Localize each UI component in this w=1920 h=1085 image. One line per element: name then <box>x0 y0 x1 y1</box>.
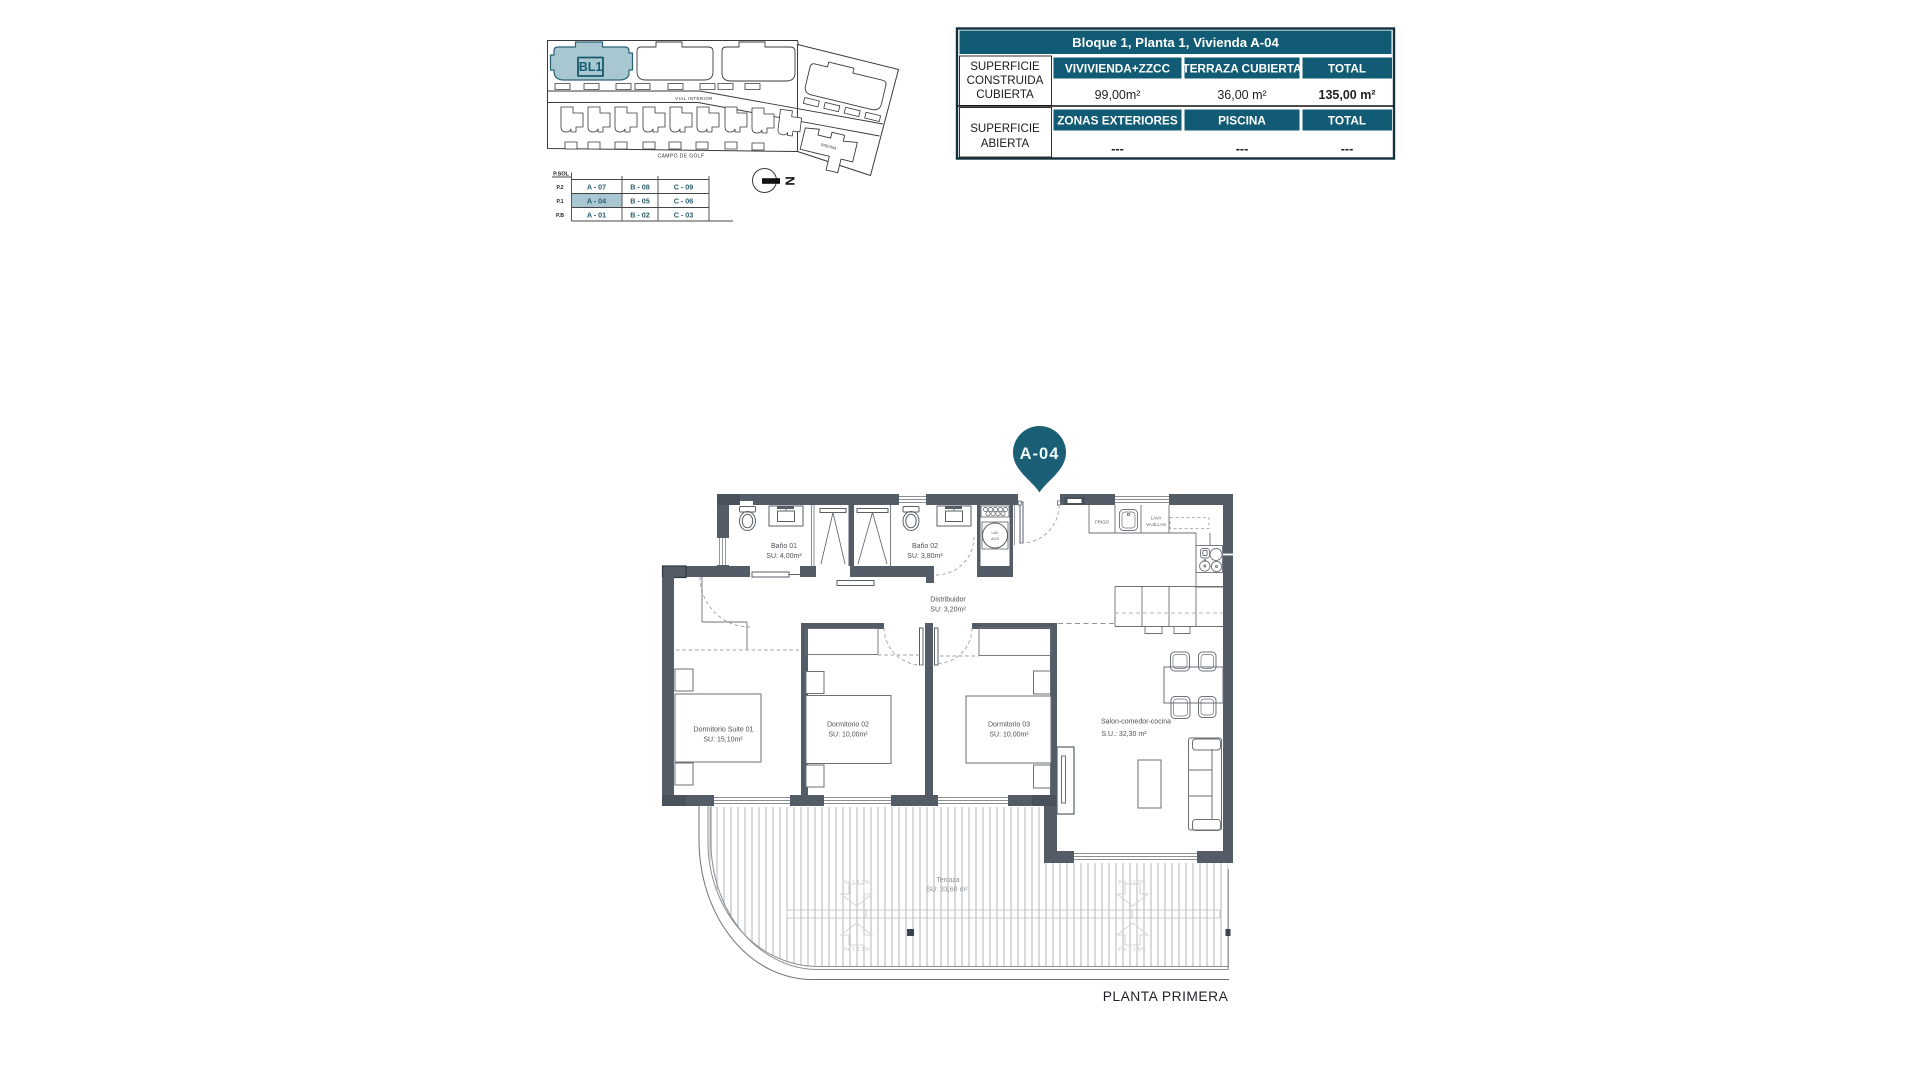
svg-text:TOTAL: TOTAL <box>1328 62 1366 76</box>
svg-text:A-04: A-04 <box>1020 445 1060 463</box>
svg-text:N: N <box>783 176 798 185</box>
svg-text:SU: 15,10m²: SU: 15,10m² <box>703 737 743 744</box>
svg-text:SU: 3,20m²: SU: 3,20m² <box>930 607 966 614</box>
svg-text:CONSTRUIDA: CONSTRUIDA <box>967 74 1044 87</box>
svg-text:TOTAL: TOTAL <box>1328 114 1366 128</box>
svg-text:P.B: P.B <box>556 213 564 219</box>
svg-text:Distribuidor: Distribuidor <box>930 597 966 604</box>
svg-text:Baño 02: Baño 02 <box>912 543 938 550</box>
svg-text:Dormitorio 02: Dormitorio 02 <box>827 722 869 729</box>
svg-text:99,00m²: 99,00m² <box>1095 88 1141 102</box>
svg-text:P.1: P.1 <box>556 199 563 205</box>
svg-text:B - 08: B - 08 <box>630 183 650 192</box>
svg-text:BL1: BL1 <box>579 60 603 74</box>
svg-text:SU: 3,80m²: SU: 3,80m² <box>907 553 943 560</box>
svg-text:ZONAS EXTERIORES: ZONAS EXTERIORES <box>1057 114 1178 128</box>
svg-text:Pte 1-1.3%: Pte 1-1.3% <box>1118 880 1145 886</box>
svg-text:A - 07: A - 07 <box>587 183 606 192</box>
svg-text:SU: 10,00m²: SU: 10,00m² <box>828 732 868 739</box>
svg-text:C - 03: C - 03 <box>674 211 694 220</box>
svg-text:SUPERFICIE: SUPERFICIE <box>970 122 1040 135</box>
svg-text:B - 05: B - 05 <box>630 197 650 206</box>
svg-text:Dormitorio 03: Dormitorio 03 <box>988 722 1030 729</box>
svg-text:LAV: LAV <box>992 531 999 535</box>
svg-text:---: --- <box>1236 142 1249 156</box>
svg-text:PISCINA: PISCINA <box>1218 114 1266 128</box>
svg-text:B - 02: B - 02 <box>630 211 650 220</box>
svg-text:36,00 m²: 36,00 m² <box>1217 88 1266 102</box>
svg-text:SU: 4,00m²: SU: 4,00m² <box>766 553 802 560</box>
svg-text:P.SOL: P.SOL <box>553 172 569 178</box>
svg-text:SUPERFICIE: SUPERFICIE <box>970 60 1040 73</box>
svg-text:C - 06: C - 06 <box>674 197 694 206</box>
svg-text:Baño 01: Baño 01 <box>771 543 797 550</box>
svg-text:ABIERTA: ABIERTA <box>981 137 1030 150</box>
svg-text:FRIGO: FRIGO <box>1095 520 1109 525</box>
svg-text:VIAL INTERIOR: VIAL INTERIOR <box>675 96 713 101</box>
svg-text:ACS: ACS <box>991 537 999 541</box>
svg-text:Dormitorio Suite 01: Dormitorio Suite 01 <box>694 727 754 734</box>
svg-text:P.2: P.2 <box>556 185 563 191</box>
svg-text:Pte 1-1.5%: Pte 1-1.5% <box>1118 947 1145 953</box>
svg-text:Pte 1-1.3%: Pte 1-1.3% <box>842 880 869 886</box>
svg-text:PLANTA PRIMERA: PLANTA PRIMERA <box>1103 989 1229 1004</box>
svg-text:---: --- <box>1111 142 1124 156</box>
svg-text:SU: 33,60 m²: SU: 33,60 m² <box>926 887 968 894</box>
svg-text:Pte 1-1.5%: Pte 1-1.5% <box>842 947 869 953</box>
svg-text:TERRAZA CUBIERTA: TERRAZA CUBIERTA <box>1182 62 1302 76</box>
svg-text:S.U.: 32,30 m²: S.U.: 32,30 m² <box>1101 731 1147 738</box>
svg-text:Terraza: Terraza <box>936 877 959 884</box>
svg-text:---: --- <box>1341 142 1354 156</box>
svg-text:C - 09: C - 09 <box>674 183 694 192</box>
svg-text:LAVA: LAVA <box>1151 516 1162 521</box>
svg-text:Bloque 1, Planta 1, Vivienda A: Bloque 1, Planta 1, Vivienda A-04 <box>1072 35 1279 50</box>
svg-text:SU: 10,00m²: SU: 10,00m² <box>989 732 1029 739</box>
svg-text:A - 04: A - 04 <box>587 197 606 206</box>
svg-text:VAJILLAS: VAJILLAS <box>1146 522 1166 527</box>
svg-text:VIVIVIENDA+ZZCC: VIVIVIENDA+ZZCC <box>1065 62 1171 76</box>
svg-text:Salon-comedor-cocina: Salon-comedor-cocina <box>1101 719 1171 726</box>
svg-text:135,00 m²: 135,00 m² <box>1319 88 1376 102</box>
svg-text:A - 01: A - 01 <box>587 211 606 220</box>
svg-text:CUBIERTA: CUBIERTA <box>976 88 1034 101</box>
svg-text:CAMPO DE GOLF: CAMPO DE GOLF <box>658 154 705 160</box>
